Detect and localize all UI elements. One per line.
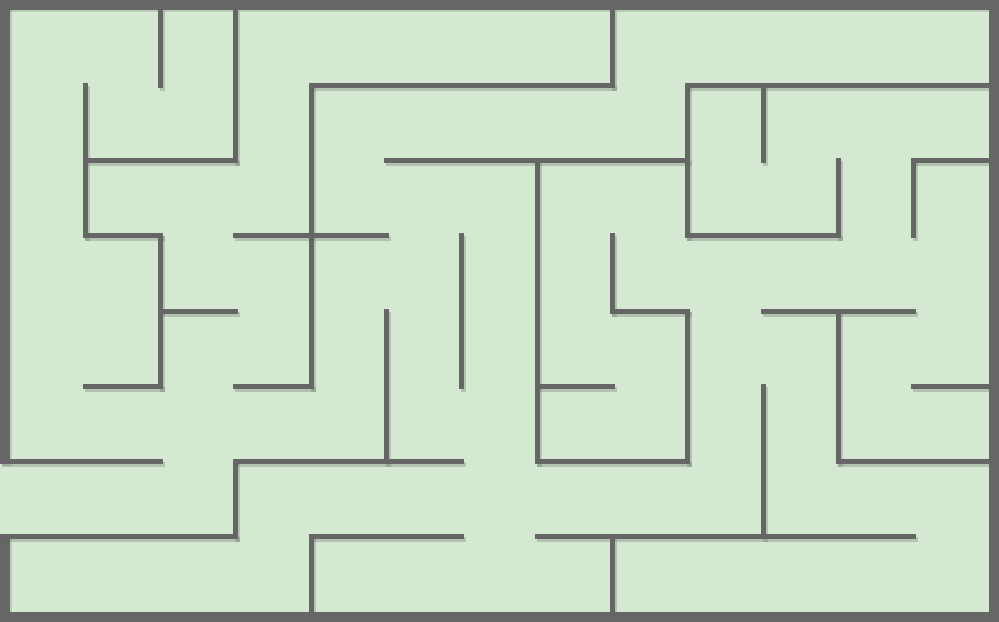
maze-wall [535, 459, 691, 464]
maze-wall [83, 384, 163, 389]
maze-wall [836, 309, 841, 465]
maze-border [0, 0, 999, 10]
maze-wall [0, 459, 163, 464]
maze-wall [535, 158, 540, 464]
maze-wall [610, 8, 615, 88]
maze-wall [911, 158, 991, 163]
maze-wall [233, 459, 238, 539]
maze-wall [233, 8, 238, 164]
maze-wall [158, 8, 163, 88]
maze-wall [233, 384, 313, 389]
maze-wall [761, 384, 766, 540]
maze-wall [685, 309, 690, 465]
maze-wall [911, 384, 991, 389]
maze-wall [158, 309, 238, 314]
maze-wall [535, 384, 615, 389]
maze-wall [384, 309, 389, 465]
maze-wall [384, 158, 690, 163]
maze-border [989, 0, 999, 622]
maze-wall [459, 233, 464, 389]
maze-wall [685, 233, 841, 238]
maze-wall [610, 233, 615, 313]
maze-wall [836, 158, 841, 238]
maze-wall [685, 83, 991, 88]
maze-wall [0, 534, 238, 539]
maze-wall [83, 233, 163, 238]
maze-wall [761, 83, 766, 163]
maze-wall [309, 83, 615, 88]
maze-border [0, 612, 999, 622]
maze-wall [233, 459, 464, 464]
maze-wall [535, 534, 917, 539]
maze-wall [610, 309, 690, 314]
maze-wall [836, 459, 992, 464]
maze-wall [309, 534, 314, 614]
maze-wall [610, 534, 615, 614]
maze-wall [309, 534, 465, 539]
maze-wall [83, 158, 239, 163]
maze-wall [233, 233, 389, 238]
maze-canvas [0, 0, 999, 622]
maze-wall [761, 309, 917, 314]
maze-border [0, 534, 10, 622]
maze-wall [911, 158, 916, 238]
maze-border [0, 0, 10, 464]
